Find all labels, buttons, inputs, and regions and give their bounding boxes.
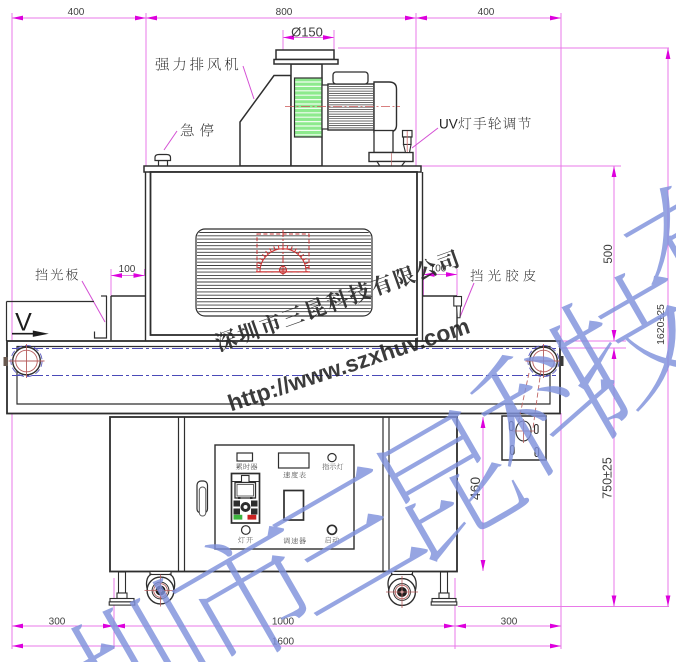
svg-text:400: 400 [478, 7, 495, 18]
svg-text:100: 100 [119, 264, 136, 275]
svg-text:750±25: 750±25 [601, 457, 615, 499]
svg-text:800: 800 [276, 7, 293, 18]
svg-text:500: 500 [603, 244, 615, 263]
svg-text:1620±25: 1620±25 [655, 304, 667, 345]
svg-text:400: 400 [68, 7, 85, 18]
svg-text:300: 300 [49, 617, 66, 628]
svg-text:V: V [15, 309, 32, 337]
svg-text:UV: UV [439, 117, 458, 132]
svg-text:Ø150: Ø150 [291, 25, 323, 40]
svg-text:300: 300 [501, 617, 518, 628]
